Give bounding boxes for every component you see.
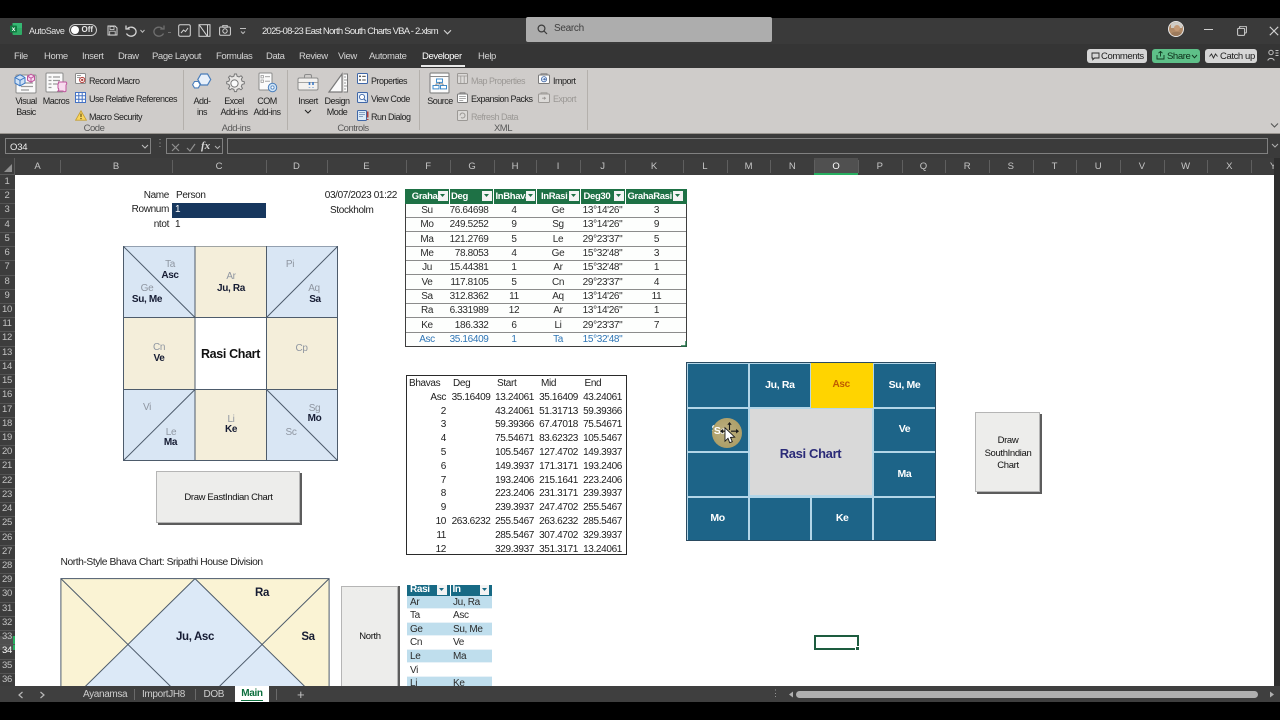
svg-text:x: x <box>12 26 16 33</box>
